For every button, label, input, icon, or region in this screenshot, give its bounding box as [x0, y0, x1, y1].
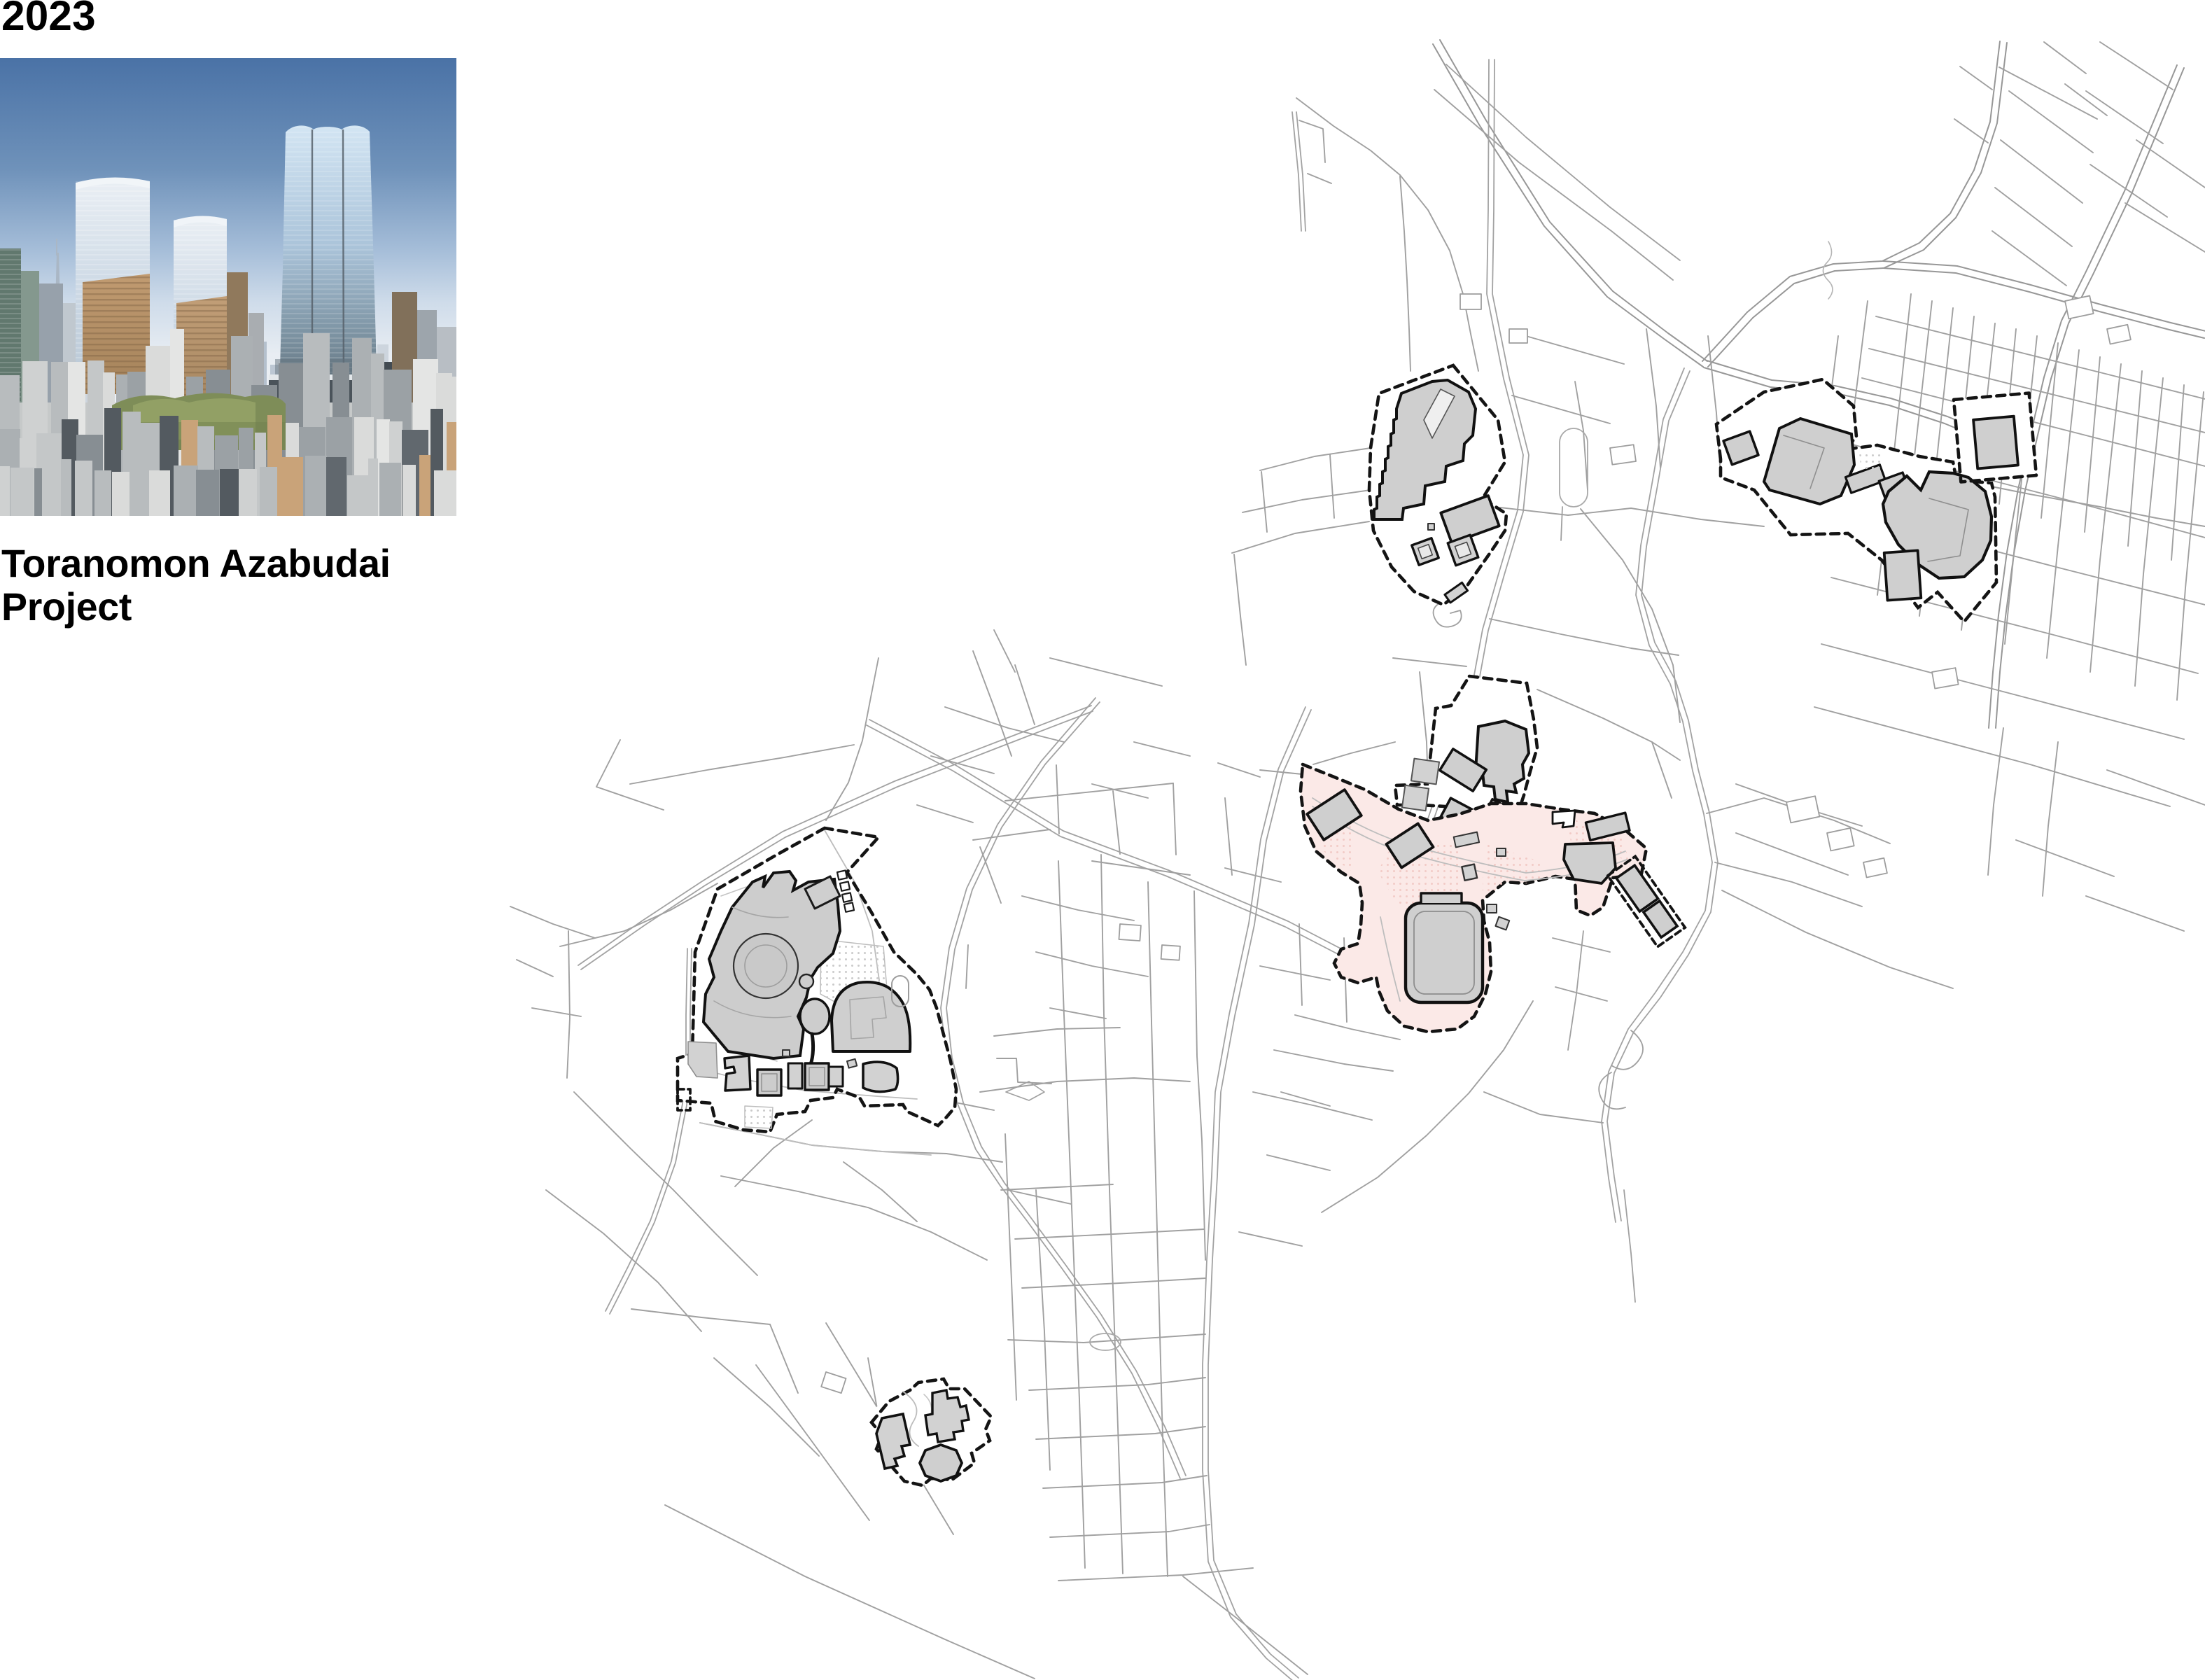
svg-text:Toranomon Azabudai: Toranomon Azabudai — [1, 542, 391, 585]
svg-text:2023: 2023 — [1, 0, 96, 39]
svg-text:Project: Project — [1, 585, 132, 629]
